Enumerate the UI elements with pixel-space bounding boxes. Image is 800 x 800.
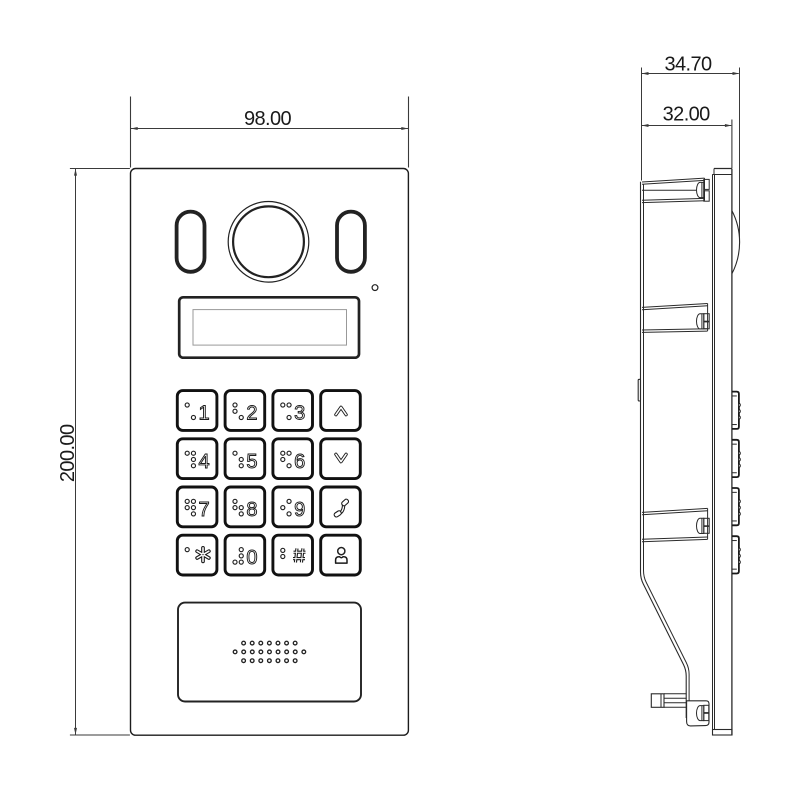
svg-text:7: 7 <box>199 499 210 521</box>
svg-text:3: 3 <box>294 403 305 425</box>
svg-text:98.00: 98.00 <box>244 108 292 130</box>
svg-text:9: 9 <box>294 499 305 521</box>
svg-text:6: 6 <box>294 451 305 473</box>
svg-text:1: 1 <box>199 403 210 425</box>
svg-text:200.00: 200.00 <box>57 424 79 482</box>
svg-text:2: 2 <box>246 403 257 425</box>
svg-text:0: 0 <box>246 547 257 569</box>
svg-text:34.70: 34.70 <box>664 53 712 75</box>
svg-text:8: 8 <box>246 499 257 521</box>
svg-text:5: 5 <box>246 451 257 473</box>
svg-text:32.00: 32.00 <box>663 104 711 126</box>
svg-text:4: 4 <box>199 451 210 473</box>
